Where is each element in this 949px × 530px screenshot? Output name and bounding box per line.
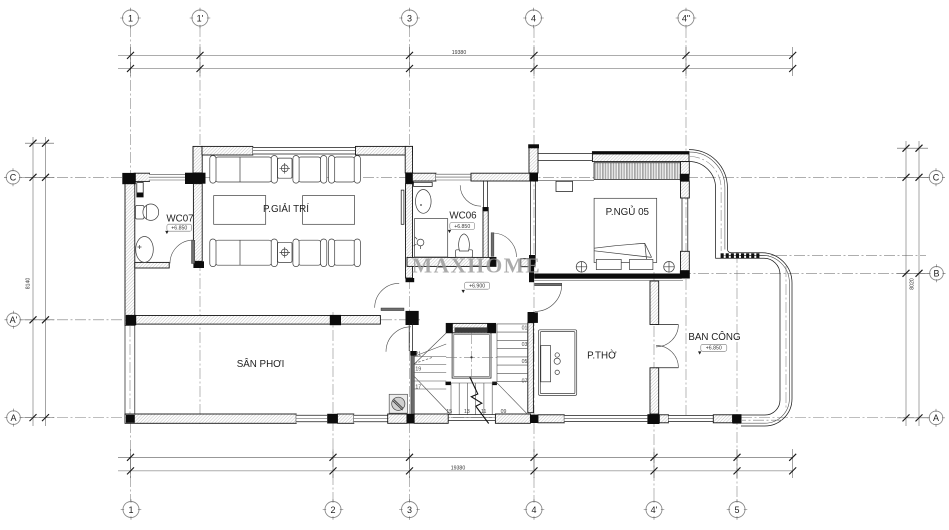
svg-text:4: 4 (531, 505, 536, 515)
svg-text:+6.850: +6.850 (171, 226, 187, 232)
svg-text:8020: 8020 (910, 278, 916, 290)
svg-text:11: 11 (481, 409, 486, 415)
svg-text:03: 03 (522, 342, 528, 348)
svg-text:+6.850: +6.850 (454, 224, 470, 230)
svg-text:4': 4' (651, 505, 658, 515)
svg-text:BAN CÔNG: BAN CÔNG (688, 332, 740, 343)
svg-text:05: 05 (522, 359, 528, 365)
svg-text:5: 5 (734, 505, 739, 515)
svg-text:SÂN PHƠI: SÂN PHƠI (237, 359, 285, 370)
svg-text:07: 07 (522, 378, 528, 384)
svg-text:MAXHOME: MAXHOME (412, 253, 541, 277)
svg-text:C: C (10, 173, 17, 183)
svg-text:19380: 19380 (452, 50, 467, 56)
svg-text:A: A (10, 413, 16, 423)
svg-text:19: 19 (415, 367, 421, 373)
svg-text:P.GIẢI TRÍ: P.GIẢI TRÍ (263, 203, 309, 215)
svg-text:19380: 19380 (451, 465, 466, 471)
svg-text:21: 21 (415, 352, 421, 358)
svg-text:09: 09 (501, 409, 507, 415)
svg-text:1: 1 (128, 13, 133, 23)
svg-text:P.THỜ: P.THỜ (587, 351, 617, 362)
svg-text:3: 3 (407, 505, 412, 515)
svg-text:C: C (933, 173, 940, 183)
svg-text:A: A (933, 413, 939, 423)
svg-text:4": 4" (682, 13, 690, 23)
svg-text:WC07: WC07 (166, 214, 193, 225)
svg-text:4: 4 (531, 13, 536, 23)
svg-text:1': 1' (197, 13, 204, 23)
svg-text:1: 1 (128, 505, 133, 515)
svg-text:WC06: WC06 (449, 211, 477, 222)
svg-text:P.NGỦ 05: P.NGỦ 05 (606, 206, 650, 218)
svg-text:3: 3 (407, 13, 412, 23)
svg-text:A': A' (10, 315, 18, 325)
svg-text:17: 17 (415, 385, 421, 391)
svg-text:01: 01 (522, 326, 528, 332)
svg-text:15: 15 (446, 409, 452, 415)
svg-text:+6.900: +6.900 (469, 284, 485, 290)
svg-text:8140: 8140 (26, 278, 32, 290)
svg-text:2: 2 (330, 505, 335, 515)
svg-text:13: 13 (464, 409, 470, 415)
svg-text:B: B (933, 269, 939, 279)
svg-text:+6.850: +6.850 (706, 346, 722, 352)
